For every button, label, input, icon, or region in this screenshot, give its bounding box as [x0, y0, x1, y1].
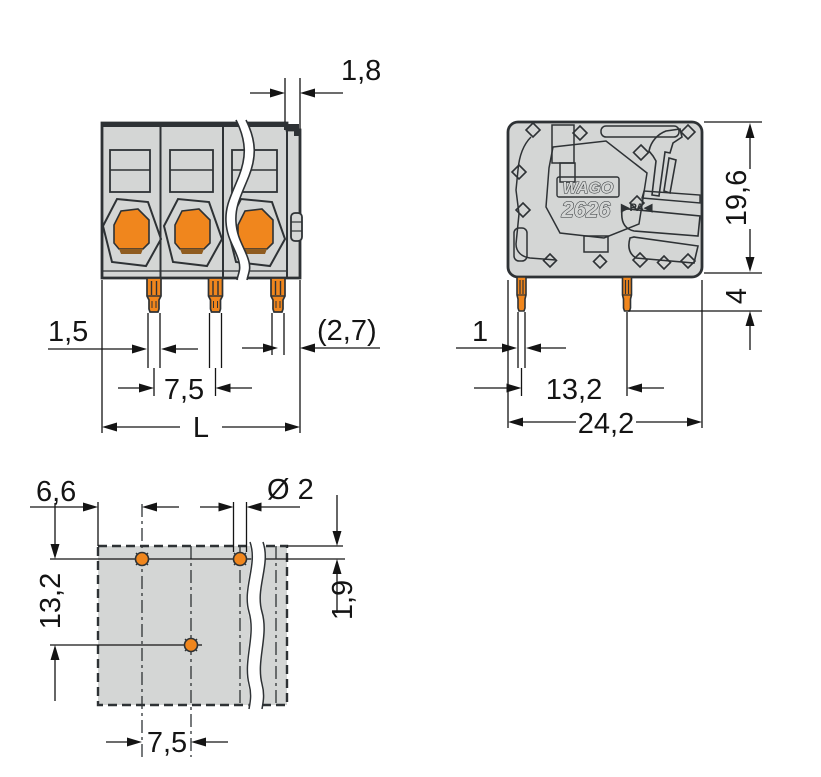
dim-front-pitch-label: 7,5: [164, 374, 204, 406]
dim-side-depth-label: 24,2: [578, 408, 634, 440]
technical-drawing-page: 1,8 1,5 (2,7) 7,5 L: [0, 0, 821, 777]
brand-text: WAGO: [563, 180, 614, 197]
dim-front-flange-label: 1,8: [341, 55, 381, 87]
dim-side-pin-length-label: 4: [721, 288, 753, 304]
dim-plan-edge-offset-label: 6,6: [36, 476, 76, 508]
drilling-plan: 6,6 Ø 2 13,2 1,9 7,5: [30, 474, 359, 759]
dim-plan-hole-diameter-label: Ø 2: [267, 474, 314, 506]
latch-detail: [291, 213, 302, 241]
dim-front-pin-width-label: 1,5: [48, 316, 88, 348]
series-number-text: 2626: [561, 197, 612, 222]
dim-side-height-label: 19,6: [721, 170, 753, 226]
dim-front-edge-label: (2,7): [317, 315, 377, 347]
dim-plan-pitch-label: 7,5: [147, 727, 187, 759]
drill-hole: [136, 553, 149, 566]
dim-side-pin-thickness-label: 1: [472, 316, 488, 348]
material-marking-text: ▶PA◀: [620, 202, 653, 214]
drill-hole: [234, 553, 247, 566]
side-view: WAGO 2626 ▶PA◀: [456, 122, 762, 440]
dim-front-length-label: L: [193, 412, 209, 444]
dim-plan-row-spacing-label: 13,2: [35, 573, 67, 629]
dim-side-pin-spacing-label: 13,2: [546, 374, 602, 406]
dim-plan-top-offset-label: 1,9: [327, 580, 359, 620]
terminal-block-drawing: 1,8 1,5 (2,7) 7,5 L: [0, 0, 821, 777]
front-view: 1,8 1,5 (2,7) 7,5 L: [48, 55, 381, 444]
drill-hole: [185, 639, 198, 652]
